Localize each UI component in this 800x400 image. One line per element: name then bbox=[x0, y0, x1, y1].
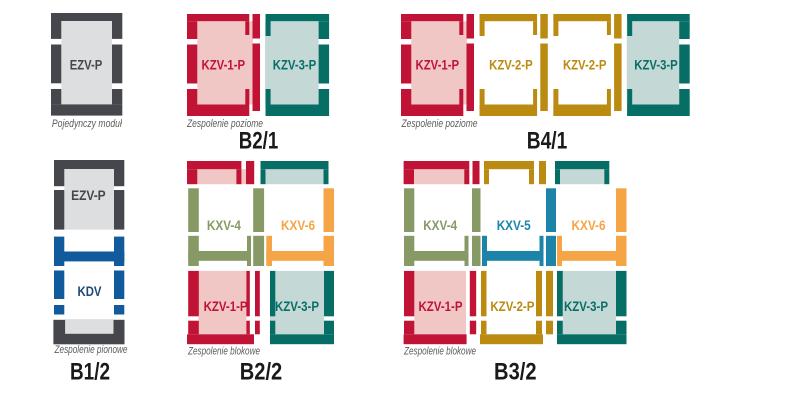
svg-text:KZV-1-P: KZV-1-P bbox=[416, 57, 460, 72]
svg-text:EZV-P: EZV-P bbox=[70, 57, 103, 72]
svg-text:KXV-6: KXV-6 bbox=[572, 218, 606, 233]
svg-text:KXV-5: KXV-5 bbox=[497, 218, 531, 233]
svg-text:B2/2: B2/2 bbox=[240, 359, 283, 386]
svg-text:Zespolenie poziome: Zespolenie poziome bbox=[401, 118, 478, 130]
svg-text:Zespolenie blokowe: Zespolenie blokowe bbox=[403, 346, 476, 358]
svg-text:KZV-1-P: KZV-1-P bbox=[419, 299, 463, 314]
svg-text:KXV-6: KXV-6 bbox=[281, 218, 315, 233]
svg-text:Zespolenie pionowe: Zespolenie pionowe bbox=[54, 344, 128, 356]
svg-text:KDV: KDV bbox=[78, 284, 102, 299]
svg-text:KXV-4: KXV-4 bbox=[423, 218, 457, 233]
svg-text:KZV-2-P: KZV-2-P bbox=[490, 299, 534, 314]
svg-text:KZV-2-P: KZV-2-P bbox=[563, 57, 607, 72]
svg-text:KZV-3-P: KZV-3-P bbox=[273, 57, 317, 72]
svg-text:KZV-3-P: KZV-3-P bbox=[564, 299, 608, 314]
svg-text:B2/1: B2/1 bbox=[239, 128, 279, 155]
svg-text:KZV-3-P: KZV-3-P bbox=[634, 57, 678, 72]
svg-text:KZV-3-P: KZV-3-P bbox=[275, 299, 319, 314]
svg-text:B4/1: B4/1 bbox=[527, 128, 568, 155]
svg-text:B3/2: B3/2 bbox=[494, 359, 537, 386]
svg-text:KXV-4: KXV-4 bbox=[207, 218, 241, 233]
svg-text:KZV-1-P: KZV-1-P bbox=[202, 57, 246, 72]
svg-text:Pojedynczy moduł: Pojedynczy moduł bbox=[52, 118, 123, 130]
svg-text:KZV-1-P: KZV-1-P bbox=[204, 299, 248, 314]
svg-text:B1/2: B1/2 bbox=[70, 358, 110, 385]
svg-text:KZV-2-P: KZV-2-P bbox=[489, 57, 533, 72]
svg-text:EZV-P: EZV-P bbox=[71, 188, 106, 203]
svg-text:Zespolenie blokowe: Zespolenie blokowe bbox=[187, 346, 260, 358]
